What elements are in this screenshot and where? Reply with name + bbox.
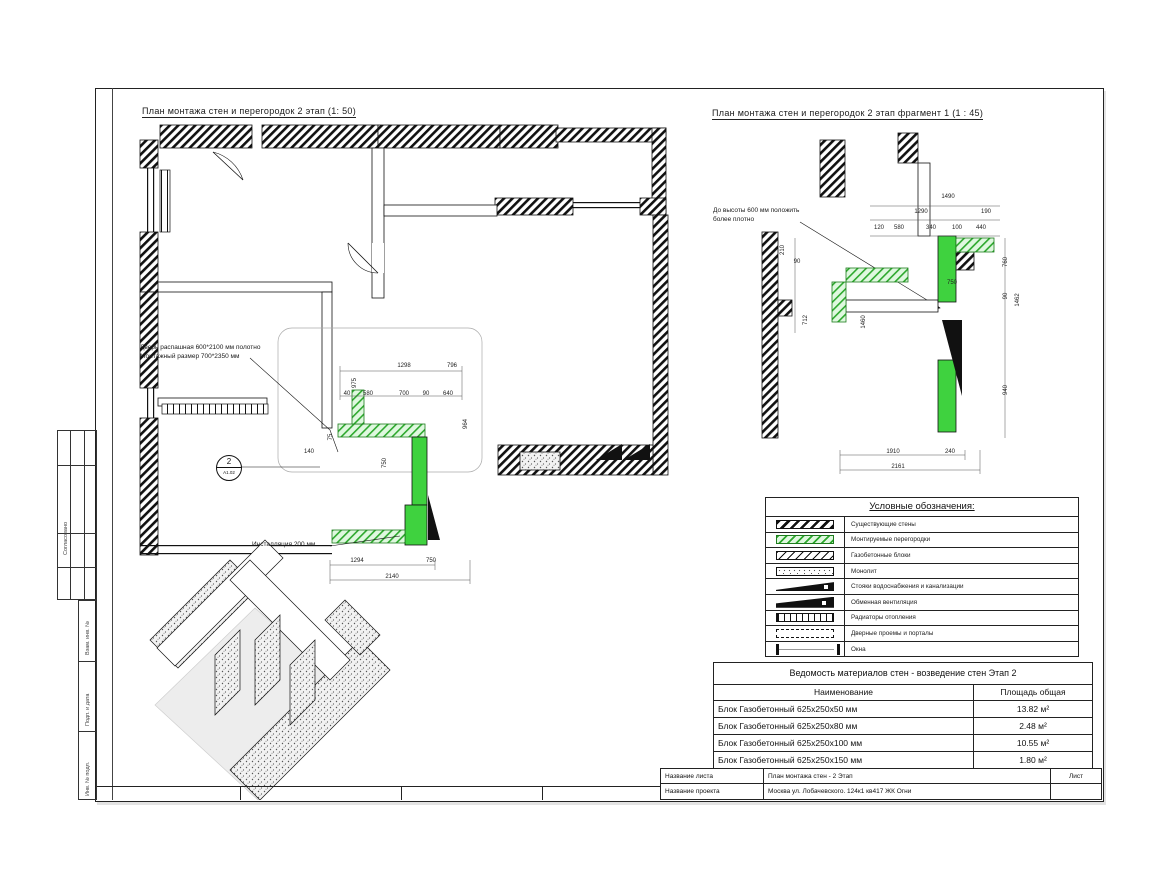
materials-row: Блок Газобетонный 625x250x150 мм1.80 м² — [714, 752, 1092, 768]
fragment-annotation-line1: До высоты 600 мм положить — [713, 206, 799, 215]
legend-item-label: Радиаторы отопления — [845, 614, 1078, 621]
drawing-sheet-page: { "titles": { "plan_title": "План монтаж… — [0, 0, 1155, 893]
plan-windows — [140, 168, 640, 554]
side-approval-stamp — [57, 430, 97, 600]
window-icon — [776, 644, 834, 655]
strip-cell — [402, 787, 543, 800]
material-area: 13.82 м² — [974, 701, 1092, 717]
legend-table: Условные обозначения: Существующие стены… — [765, 497, 1079, 657]
stamp-row-label: Подп. и дата — [85, 694, 91, 726]
aerated-block-hatch-icon — [776, 551, 834, 560]
new-partition-hatch-icon — [776, 535, 834, 544]
door-annotation-line2: Монтажный размер 700*2350 мм — [140, 352, 260, 361]
radiator-icon — [776, 613, 834, 622]
project-name-label: Название проекта — [661, 784, 764, 799]
legend-swatch-cell — [766, 517, 845, 532]
stamp-row-label: Взам. инв. № — [85, 621, 91, 655]
ventilation-icon — [776, 597, 834, 608]
materials-table-rows: Блок Газобетонный 625x250x50 мм13.82 м²Б… — [714, 701, 1092, 768]
plan-zone-outline — [278, 328, 482, 472]
legend-item: Окна — [766, 642, 1078, 657]
material-area: 1.80 м² — [974, 752, 1092, 768]
legend-item: Дверные проемы и порталы — [766, 626, 1078, 642]
list-label: Лист — [1051, 769, 1101, 784]
door-annotation: Дверь распашная 600*2100 мм полотно Монт… — [140, 343, 260, 361]
materials-table-header: Наименование Площадь общая — [714, 685, 1092, 701]
title-block: Название листа План монтажа стен - 2 Эта… — [660, 768, 1102, 800]
material-name: Блок Газобетонный 625x250x50 мм — [714, 701, 974, 717]
fragment-annotation-line2: более плотно — [713, 215, 799, 224]
legend-item-label: Существующие стены — [845, 521, 1078, 528]
legend-title: Условные обозначения: — [766, 498, 1078, 517]
legend-swatch-cell — [766, 642, 845, 657]
sheet-name-label: Название листа — [661, 769, 764, 784]
legend-swatch-cell — [766, 611, 845, 626]
material-area: 2.48 м² — [974, 718, 1092, 734]
water-sewer-riser-icon — [776, 582, 834, 591]
materials-table: Ведомость материалов стен - возведение с… — [713, 662, 1093, 769]
legend-item-label: Окна — [845, 646, 1078, 653]
material-name: Блок Газобетонный 625x250x150 мм — [714, 752, 974, 768]
strip-cell — [543, 787, 660, 800]
plan-title: План монтажа стен и перегородок 2 этап (… — [142, 106, 356, 118]
materials-table-title: Ведомость материалов стен - возведение с… — [714, 663, 1092, 685]
existing-wall-hatch-icon — [776, 520, 834, 529]
detail-marker-ref: А1.02 — [217, 468, 241, 477]
legend-item-label: Стояки водоснабжения и канализации — [845, 583, 1078, 590]
legend-item: Монтируемые перегородки — [766, 533, 1078, 549]
legend-item-label: Газобетонные блоки — [845, 552, 1078, 559]
legend-item: Существующие стены — [766, 517, 1078, 533]
approved-vertical-label: Согласовано — [63, 522, 69, 555]
material-name: Блок Газобетонный 625x250x100 мм — [714, 735, 974, 751]
materials-row: Блок Газобетонный 625x250x80 мм2.48 м² — [714, 718, 1092, 735]
sheet-name-value: План монтажа стен - 2 Этап — [764, 769, 1051, 784]
legend-item-label: Монолит — [845, 568, 1078, 575]
plan-dim-lines — [330, 366, 470, 584]
fragment-annotation: До высоты 600 мм положить более плотно — [713, 206, 799, 224]
legend-swatch-cell — [766, 548, 845, 563]
fragment-title: План монтажа стен и перегородок 2 этап ф… — [712, 108, 983, 120]
material-area: 10.55 м² — [974, 735, 1092, 751]
plan-interior-walls — [158, 148, 497, 428]
plan-existing-walls — [140, 125, 668, 555]
installation-annotation: Инсталляция 200 мм — [252, 540, 315, 549]
detail-marker: 2 А1.02 — [216, 455, 242, 481]
list-value — [1051, 784, 1101, 799]
legend-item: Обменная вентиляция — [766, 595, 1078, 611]
legend-item-label: Обменная вентиляция — [845, 599, 1078, 606]
materials-col-area: Площадь общая — [974, 685, 1092, 700]
title-block-bottom-strip — [95, 786, 660, 800]
materials-col-name: Наименование — [714, 685, 974, 700]
door-opening-icon — [776, 629, 834, 638]
legend-item-label: Монтируемые перегородки — [845, 536, 1078, 543]
materials-row: Блок Газобетонный 625x250x50 мм13.82 м² — [714, 701, 1092, 718]
axonometric-view — [150, 540, 390, 800]
plan-door-arcs — [213, 152, 384, 273]
legend-item: Стояки водоснабжения и канализации — [766, 579, 1078, 595]
detail-marker-number: 2 — [217, 456, 241, 468]
legend-swatch-cell — [766, 595, 845, 610]
monolith-stipple-icon — [776, 567, 834, 576]
material-name: Блок Газобетонный 625x250x80 мм — [714, 718, 974, 734]
project-name-value: Москва ул. Лобачевского. 124к1 кв417 ЖК … — [764, 784, 1051, 799]
strip-cell — [95, 787, 241, 800]
legend-item-label: Дверные проемы и порталы — [845, 630, 1078, 637]
legend-item: Радиаторы отопления — [766, 611, 1078, 627]
strip-cell — [241, 787, 402, 800]
legend-item: Монолит — [766, 564, 1078, 580]
legend-swatch-cell — [766, 564, 845, 579]
stamp-row-label: Инв. № подл. — [85, 762, 91, 796]
legend-swatch-cell — [766, 533, 845, 548]
legend-swatch-cell — [766, 626, 845, 641]
plan-new-partitions — [332, 390, 427, 545]
legend-item: Газобетонные блоки — [766, 548, 1078, 564]
door-annotation-line1: Дверь распашная 600*2100 мм полотно — [140, 343, 260, 352]
materials-row: Блок Газобетонный 625x250x100 мм10.55 м² — [714, 735, 1092, 752]
legend-rows: Существующие стеныМонтируемые перегородк… — [766, 517, 1078, 656]
legend-swatch-cell — [766, 579, 845, 594]
